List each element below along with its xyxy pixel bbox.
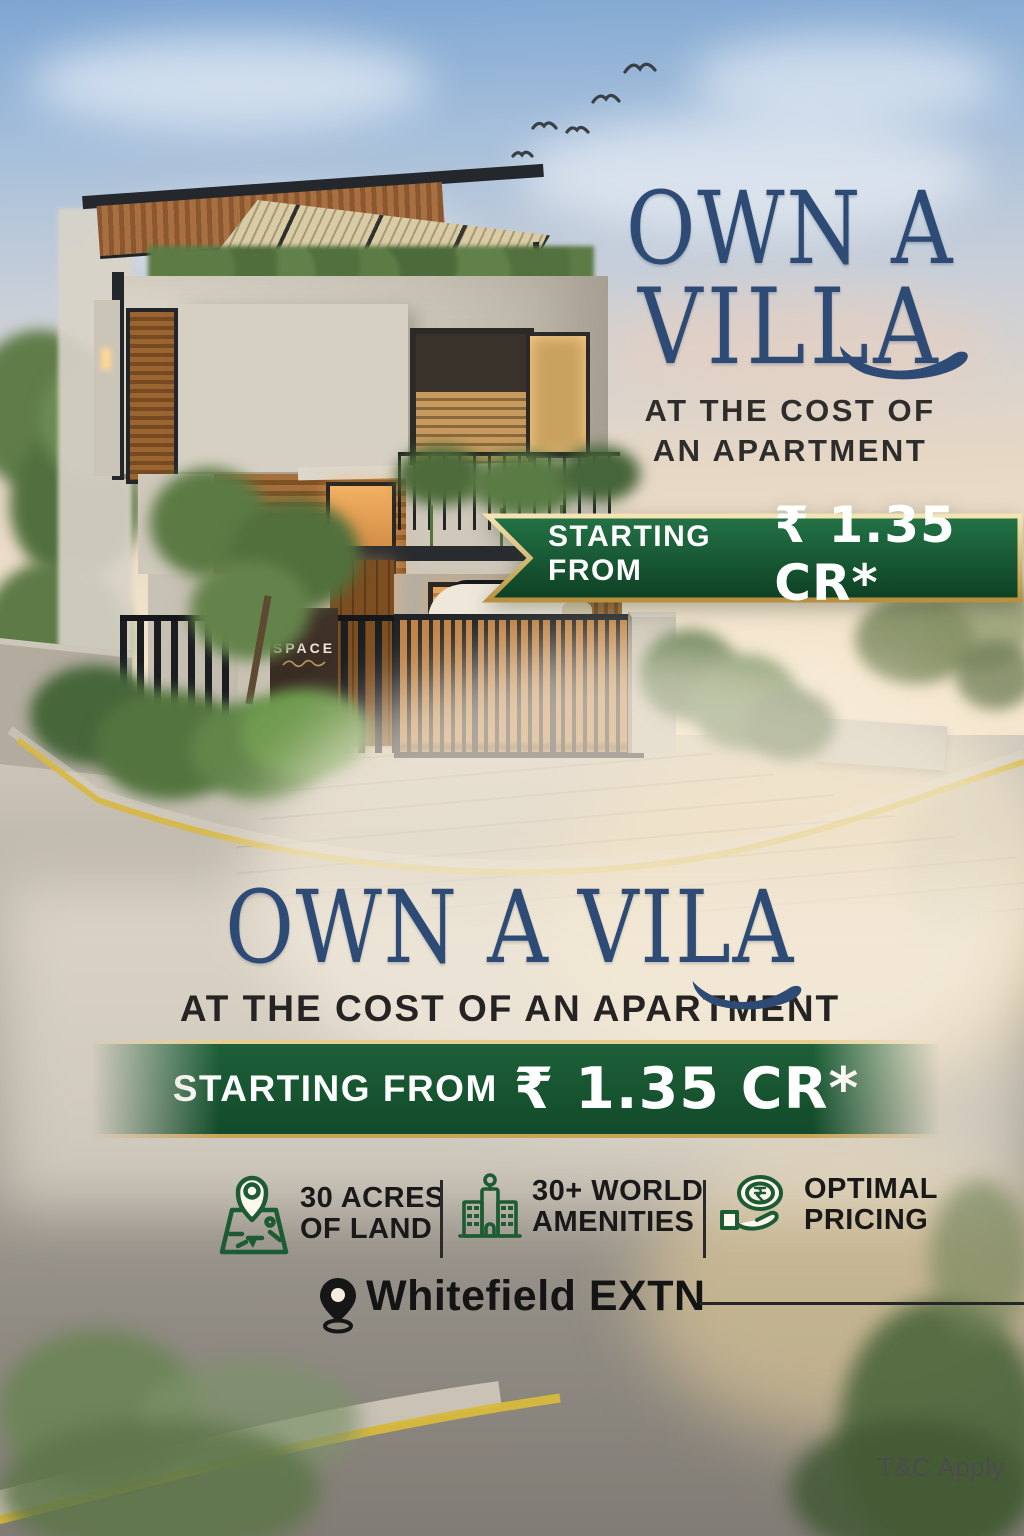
location-pin-icon [318, 1276, 358, 1334]
feature-amenities: 30+ WORLD AMENITIES [458, 1172, 703, 1242]
feature-line1: OPTIMAL [804, 1174, 938, 1205]
feature-line2: PRICING [804, 1205, 938, 1236]
price-banner-top: STARTING FROM ₹ 1.35 CR* [478, 512, 1024, 604]
map-acres-icon [218, 1170, 290, 1258]
headline-top-subline2: AN APARTMENT [560, 431, 1020, 471]
headline-mid-title: OWN A VILA [161, 878, 858, 978]
feature-text: 30 ACRES OF LAND [300, 1183, 445, 1245]
price-banner-mid: STARTING FROM ₹ 1.35 CR* [92, 1040, 940, 1138]
hand-coin-icon [718, 1172, 794, 1238]
price-prefix: STARTING FROM [548, 520, 760, 588]
feature-divider [703, 1180, 706, 1258]
headline-swash-decoration [838, 340, 978, 380]
location-rule-line [700, 1302, 1024, 1305]
headline-top-subline1: AT THE COST OF [560, 391, 1020, 431]
feature-pricing: OPTIMAL PRICING [718, 1172, 938, 1238]
price-amount: ₹ 1.35 CR* [774, 496, 1016, 612]
location-label: Whitefield EXTN [366, 1272, 706, 1321]
price-amount: ₹ 1.35 CR* [514, 1056, 860, 1122]
price-prefix: STARTING FROM [173, 1068, 498, 1110]
feature-line1: 30 ACRES [300, 1183, 445, 1214]
feature-text: 30+ WORLD AMENITIES [532, 1176, 703, 1238]
feature-text: OPTIMAL PRICING [804, 1174, 938, 1236]
headline-top: OWN A VILLA AT THE COST OF AN APARTMENT [560, 182, 1020, 471]
headline-top-line1: OWN A [595, 182, 986, 276]
tree-foliage [930, 1180, 1024, 1340]
feature-line2: OF LAND [300, 1214, 445, 1245]
amenities-building-icon [458, 1172, 522, 1242]
headline-swash-decoration [688, 976, 813, 1010]
feature-acres: 30 ACRES OF LAND [218, 1170, 445, 1258]
poster: SPACE ACS [0, 0, 1024, 1536]
price-banner-top-text: STARTING FROM ₹ 1.35 CR* [548, 512, 1016, 596]
terms-disclaimer: T&C Apply [820, 1452, 1005, 1483]
feature-line1: 30+ WORLD [532, 1176, 703, 1207]
feature-divider [440, 1180, 443, 1258]
feature-line2: AMENITIES [532, 1207, 703, 1238]
